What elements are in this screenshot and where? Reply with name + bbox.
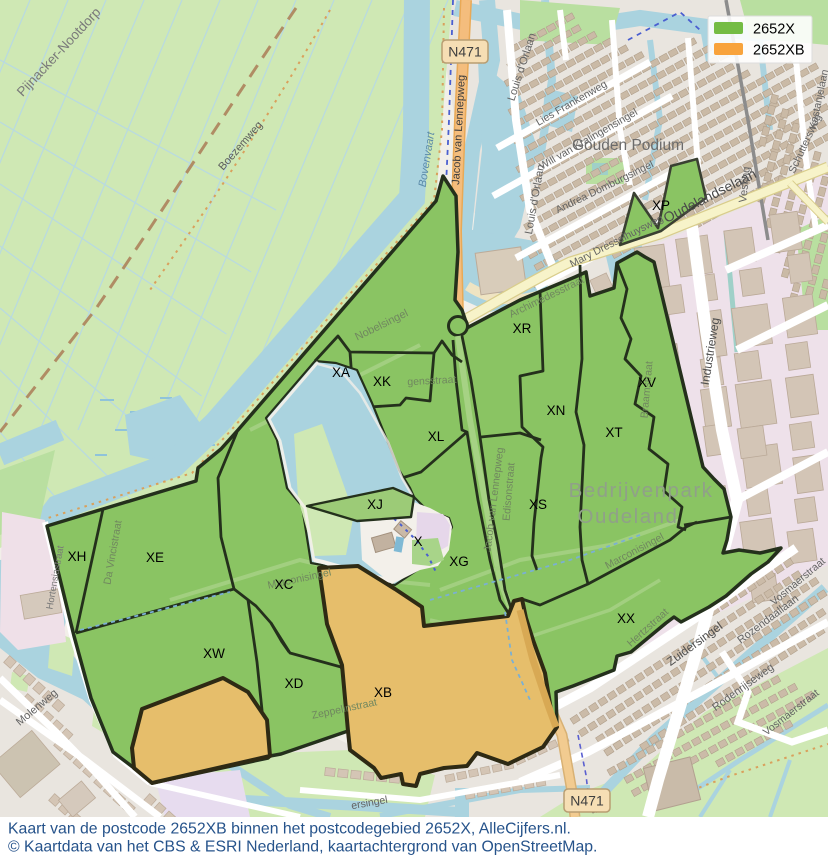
svg-text:Oudeland: Oudeland [578,505,679,528]
svg-text:gensstraat: gensstraat [407,374,457,389]
svg-text:XW: XW [203,646,225,661]
svg-text:XB: XB [374,685,392,700]
svg-text:Bedrijvenpark: Bedrijvenpark [569,479,714,502]
svg-text:N471: N471 [570,793,604,809]
svg-text:XD: XD [285,676,304,691]
svg-text:XC: XC [275,577,294,592]
svg-text:XE: XE [146,550,164,565]
svg-text:XK: XK [373,374,391,389]
svg-text:2652XB: 2652XB [753,43,805,59]
svg-text:Gouden Podium: Gouden Podium [572,137,684,154]
svg-text:© Kaartdata van het CBS & ESRI: © Kaartdata van het CBS & ESRI Nederland… [8,839,597,856]
svg-text:XJ: XJ [367,497,383,512]
svg-text:X: X [413,534,422,549]
svg-text:XN: XN [547,403,566,418]
svg-text:XT: XT [605,425,622,440]
svg-text:2652X: 2652X [753,22,795,38]
svg-text:XS: XS [529,497,547,512]
svg-text:XA: XA [332,365,350,380]
svg-text:Kaart van de postcode 2652XB b: Kaart van de postcode 2652XB binnen het … [8,821,571,838]
svg-text:XP: XP [652,198,670,213]
svg-text:XH: XH [68,549,87,564]
svg-text:XX: XX [617,611,635,626]
svg-text:XL: XL [428,429,445,444]
svg-text:XG: XG [449,554,469,569]
svg-text:N471: N471 [448,44,482,60]
svg-text:XR: XR [513,321,532,336]
svg-text:XV: XV [638,375,656,390]
